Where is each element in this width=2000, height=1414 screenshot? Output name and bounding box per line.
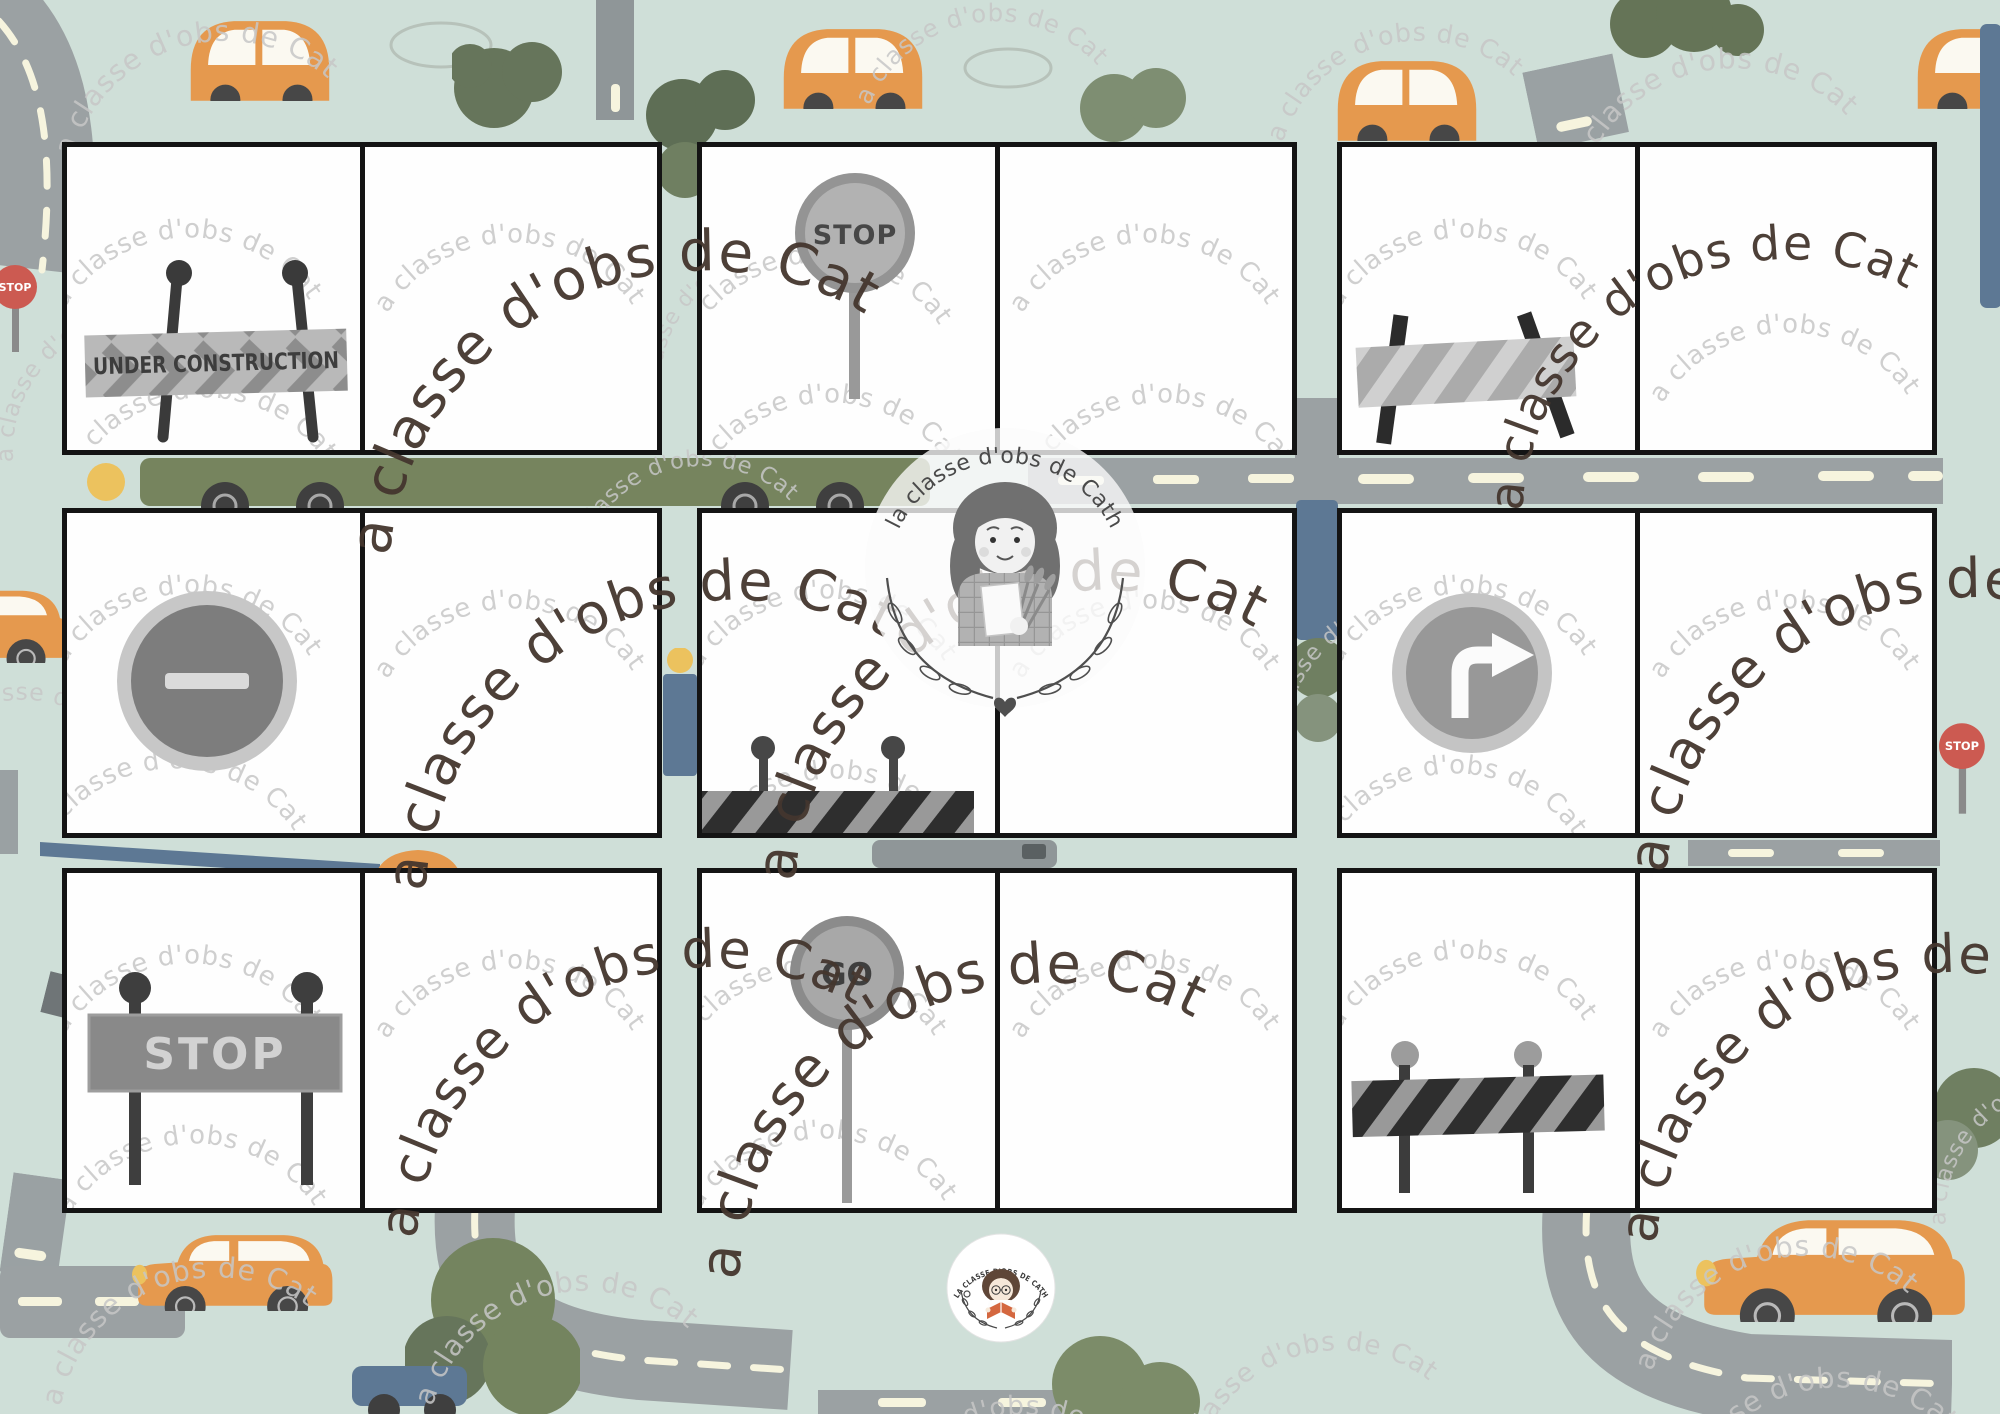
sign-label: STOP [813,220,898,251]
road-shape [1688,840,1940,868]
stop-sign-mini [0,264,42,356]
sign-label: STOP [143,1029,286,1080]
card-blank [995,147,1293,450]
tree-icon [452,36,577,146]
card-pair-row3-right [1337,868,1937,1213]
card-stop-barrier: STOP [67,873,360,1208]
badge-girl-illustration [982,1269,1020,1319]
card-pair-row3-center: GO [697,868,1297,1213]
card-under-construction: UNDER CONSTRUCTION [67,147,360,450]
truck-icon [140,456,940,514]
brand-badge: LA CLASSE D'OBS DE CATH [945,1232,1057,1344]
stop-barrier-icon: STOP [67,873,362,1208]
stop-sign-mini [1938,722,1990,818]
car-icon [778,22,928,109]
card-dark-barrier [1342,873,1635,1208]
turn-right-sign-icon [1342,513,1637,833]
truck-icon [1296,500,1338,642]
tree-icon [1926,1058,2000,1193]
road-shape [1028,456,1943,506]
truck-icon [663,648,699,780]
card-pair-row1-center: STOP [697,142,1297,455]
sign-label: GO [821,957,873,993]
card-blank [1635,147,1933,450]
card-pair-row1-left: UNDER CONSTRUCTION [62,142,662,455]
card-go-sign: GO [702,873,995,1208]
truck-icon [1980,24,2000,308]
cloud-icon [962,46,1054,90]
truck-icon [872,836,1064,872]
card-pair-row1-right [1337,142,1937,455]
dark-barrier-icon [1342,873,1637,1208]
no-entry-sign-icon [67,513,362,833]
car-icon [352,1366,474,1414]
under-construction-barrier-icon: UNDER CONSTRUCTION [67,147,362,450]
card-pair-row2-right [1337,508,1937,838]
headlight-icon [86,462,126,502]
card-blank [995,873,1293,1208]
road-shape [1295,398,1339,468]
signpost-icon [1522,53,1631,155]
card-no-entry [67,513,360,833]
car-icon [1696,1208,1971,1322]
car-icon [132,1226,337,1311]
striped-barrier-icon [1342,147,1637,450]
tree-icon [1048,1334,1208,1414]
signpost-icon [0,770,20,856]
tree-icon [1596,0,1771,62]
car-icon [1332,54,1482,141]
card-turn-right [1342,513,1635,833]
card-blank [360,873,658,1208]
center-logo: la classe d'obs de Cath [855,418,1155,728]
teacher-illustration [950,482,1060,646]
signpost-icon [596,0,636,122]
card-striped-barrier [1342,147,1635,450]
go-sign-icon: GO [702,873,997,1208]
card-blank [360,513,658,833]
card-pair-row2-left [62,508,662,838]
card-pair-row3-left: STOP [62,868,662,1213]
stop-sign-icon: STOP [702,147,997,450]
tree-icon [1076,60,1191,150]
card-stop-sign: STOP [702,147,995,450]
car-icon [185,14,335,101]
card-blank [1635,513,1933,833]
worksheet-page: la classe d'obs de Cath STOP [0,0,2000,1414]
card-blank [1635,873,1933,1208]
card-blank [360,147,658,450]
